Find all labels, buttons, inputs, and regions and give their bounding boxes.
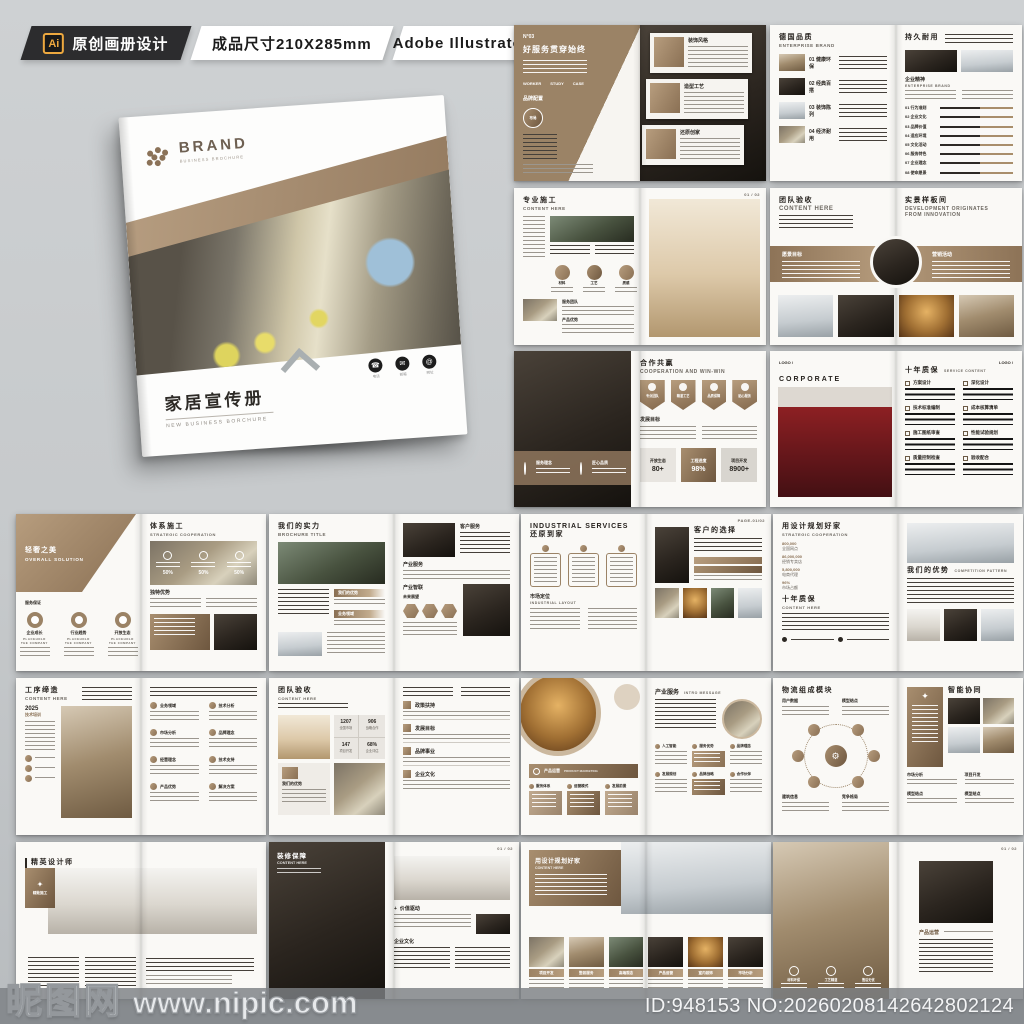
progress-bar — [940, 153, 1013, 155]
body-text-lines — [562, 324, 634, 333]
body-text-lines — [278, 703, 348, 711]
spread-title: 轻奢之美 — [25, 545, 132, 555]
section-label: 发展目标 — [640, 416, 757, 423]
body-text-lines — [278, 589, 329, 615]
bullet-dot — [782, 637, 787, 642]
photo-banner — [278, 542, 385, 584]
process-item: 品牌理念 — [209, 729, 258, 750]
item-icon — [209, 756, 216, 763]
page-right: 01 / 02 产品运营 — [889, 842, 1023, 999]
full-page-photo — [649, 199, 760, 337]
process-item: 技术分析 — [209, 702, 258, 723]
bullet-line — [791, 639, 834, 641]
metric-lines — [965, 779, 1015, 787]
flow-lines — [694, 753, 719, 763]
section-subtitle: INDUSTRIAL LAYOUT — [530, 601, 637, 605]
icon-label: 售后无忧 — [855, 977, 881, 982]
photo-thumbnail — [334, 763, 386, 815]
kitchen-photo — [778, 387, 892, 497]
page-right: 持久耐用 企业精神 ENTERPRISE BRAND 01 行为准则 02 企业… — [896, 25, 1022, 181]
service-lines — [963, 463, 1013, 475]
body-text-lines — [839, 56, 887, 70]
contact-phone-label: 电话 — [373, 375, 380, 380]
bar-label: 05 文化活动 — [905, 142, 937, 148]
sidebar-lines — [25, 721, 55, 751]
logo-placeholder: LOGO / — [779, 360, 887, 365]
section-label: 企业精神 — [905, 76, 1013, 83]
bar-label: 06 服务特色 — [905, 151, 937, 157]
cover-contacts: ☎ 电话 ✉ 邮箱 @ 网址 — [368, 355, 437, 381]
body-text-lines — [655, 699, 716, 729]
card-title: 还原创家 — [680, 129, 740, 136]
orbit-diagram: ⚙ — [786, 722, 886, 790]
eco-icon — [789, 966, 799, 976]
section-icon — [403, 724, 411, 732]
spread-process-creation: 工序缔造 CONTENT HERE 2025 技术培训 业务领域 技术分析 市场… — [16, 678, 266, 835]
bullet-circle — [25, 755, 32, 762]
photo-overlay-band: 服务理念 匠心品质 — [514, 451, 631, 485]
stat-label: 工程进度 — [691, 458, 707, 464]
progress-bar — [940, 116, 1013, 118]
spread-team-acceptance: 团队验收 CONTENT HERE 实景样板间 DEVELOPMENT ORIG… — [770, 188, 1022, 345]
item-lines — [150, 738, 199, 750]
item-label: 产品优势 — [160, 784, 176, 790]
photo-thumbnail — [463, 584, 510, 636]
donut-label: 企业成长 — [20, 630, 50, 636]
stat-icon — [235, 551, 244, 560]
spread-title: 精英设计师 — [31, 859, 74, 866]
metric-label: 项目开发 — [965, 772, 1015, 778]
flow-dot — [730, 744, 735, 749]
photo-thumbnail — [214, 614, 257, 650]
item-icon — [209, 702, 216, 709]
room-photo — [919, 861, 993, 923]
metric-label: 模型结点 — [965, 791, 1015, 797]
stat-value: 8900+ — [729, 466, 749, 473]
flow-dot — [730, 772, 735, 777]
page-right: 合作共赢 COOPERATION AND WIN-WIN 专业团队 精湛工艺 品… — [631, 351, 766, 507]
overlay-lines — [592, 468, 626, 476]
bubble-lines — [610, 557, 633, 583]
item-label: 解决方案 — [219, 784, 235, 790]
photo-thumbnail — [779, 126, 805, 143]
overlay-lines — [536, 468, 570, 476]
spread-design-planning: 用设计规划好家 STRATEGIC COOPERATION 800,000全国网… — [773, 514, 1023, 671]
section-label: 产品优势 — [562, 317, 634, 323]
badge-label: 专业团队 — [646, 393, 659, 398]
orbit-node — [852, 776, 864, 788]
service-lines — [905, 438, 955, 450]
spread-title-en: INDUSTRIAL SERVICES — [530, 523, 637, 531]
spread-title: 团队验收 — [278, 687, 385, 695]
handshake-icon — [580, 462, 582, 475]
photo-thumbnail — [983, 727, 1015, 753]
service-icon — [963, 456, 968, 461]
body-text-lines — [907, 578, 1014, 604]
bullet-circle — [25, 765, 32, 772]
stat-value: 80+ — [652, 466, 664, 473]
contact-web: @ 网址 — [422, 355, 437, 377]
spread-title: 我们的实力 — [278, 523, 385, 531]
spread-subtitle: STRATEGIC COOPERATION — [150, 532, 257, 537]
body-text-lines — [403, 622, 457, 636]
metric-lines — [965, 798, 1015, 806]
body-text-lines — [839, 104, 887, 118]
brown-card — [150, 614, 210, 650]
page-number: 01 / 02 — [1001, 846, 1017, 851]
corner-lines — [782, 706, 829, 718]
item-label: 经营理念 — [160, 757, 176, 763]
spread-title: 装修保障 — [277, 850, 321, 860]
spread-title: 德国品质 — [779, 34, 887, 42]
item-lines — [150, 765, 199, 777]
title-tick — [25, 858, 27, 868]
stat-label: 电商代理 — [782, 572, 889, 578]
spread-subtitle: CONTENT HERE — [779, 206, 887, 212]
spread-title: 产业服务 — [655, 687, 679, 696]
item-icon — [150, 756, 157, 763]
flow-dot — [605, 784, 610, 789]
feature-card: 还原创家 — [642, 125, 744, 165]
body-text-lines — [146, 958, 254, 971]
body-text-lines — [839, 80, 887, 94]
bar-sublabel: PRODUCT MARKETING — [564, 769, 598, 773]
card-label: 产品运营 — [659, 971, 673, 976]
badge-circle: 布局 — [523, 108, 543, 128]
item-icon — [150, 729, 157, 736]
photo-thumbnail — [278, 632, 322, 656]
progress-bar — [940, 172, 1013, 174]
heading-line — [944, 931, 993, 935]
spread-industry-service-flow: 产品运营 PRODUCT MARKETING 服务体系 运营模式 发展前景 产业… — [521, 678, 771, 835]
band-text-lines — [932, 261, 1010, 279]
body-text-lines — [595, 245, 635, 257]
body-text-lines — [523, 60, 587, 74]
process-item: 经营理念 — [150, 756, 199, 777]
item-icon — [209, 729, 216, 736]
body-text-lines — [334, 620, 385, 628]
bubble-dot — [618, 545, 625, 552]
page-number-label: N°03 — [523, 34, 631, 40]
donut-sub: PLACEHOLD THE COMPANY — [20, 637, 50, 645]
box-thumb — [282, 767, 298, 779]
bubble-lines — [572, 557, 595, 583]
metric-item: 模型结点 — [907, 791, 957, 806]
bubble-card — [568, 545, 599, 587]
body-text-lines — [334, 599, 385, 607]
page-right: 产业服务 INTRO MESSAGE 人工智能 服务优势 品牌理念 发展规划 品… — [646, 678, 771, 835]
card-label: 项目开发 — [539, 971, 553, 976]
badge-shield: 品质保障 — [702, 380, 727, 410]
item-icon — [150, 783, 157, 790]
service-lines — [963, 388, 1013, 400]
spread-subtitle: BROCHURE TITLE — [278, 532, 385, 537]
hexagon-icon — [441, 604, 457, 618]
page-left: 专业施工 CONTENT HERE 材料 工艺 质感 服务团队 产品优势 — [514, 188, 643, 345]
body-text-lines — [945, 34, 1013, 46]
contact-phone: ☎ 电话 — [368, 358, 383, 380]
bubble-dot — [542, 545, 549, 552]
trophy-icon: ✦ — [921, 691, 929, 702]
service-label: 成本核算清单 — [971, 405, 998, 411]
band-circle-photo — [870, 236, 922, 288]
badge-shield: 贴心服务 — [732, 380, 757, 410]
page-right: 01 / 02 +价值驱动 企业文化 — [385, 842, 519, 999]
corner-label: 模型结点 — [842, 698, 889, 704]
page-left: 轻奢之美 OVERALL SOLUTION 服务保证 企业成长PLACEHOLD… — [16, 514, 141, 671]
hexagon-icon — [403, 604, 419, 618]
feature-card: 整装服务 — [569, 937, 604, 991]
flow-lines — [608, 794, 632, 810]
bar-label: 07 企业理念 — [905, 160, 937, 166]
flow-label: 服务优势 — [699, 744, 713, 749]
feature-card: 市场分析 — [728, 937, 763, 991]
spread-corporate-culture: LOGO / CORPORATE CULTURE 大宅设计 LOGO / 十年质… — [770, 351, 1022, 507]
metric-label: 市场分析 — [907, 772, 957, 778]
item-lines — [209, 738, 258, 750]
body-text-lines — [839, 128, 887, 142]
orbit-node — [868, 750, 880, 762]
photo-banner: 50% 50% 50% — [150, 541, 257, 585]
staircase-photo — [621, 842, 771, 914]
item-lines — [150, 711, 199, 723]
list-text-lines — [523, 134, 557, 160]
corner-lines — [782, 802, 829, 814]
badge-icon — [741, 383, 749, 391]
feature-card: 室内装饰 — [688, 937, 723, 991]
photo-thumbnail — [959, 295, 1014, 337]
item-icon — [150, 702, 157, 709]
dining-room-photo — [61, 706, 132, 818]
photo-overlay-icons: 材料环保 工艺精湛 售后无忧 — [779, 966, 883, 989]
stat-percent: 50% — [227, 570, 251, 576]
spread-logistics-module: 物流组成模块 用户数据 模型结点 ⚙ 建筑信息 竞争格局 ✦ 智能协 — [773, 678, 1023, 835]
spread-subtitle: CONTENT HERE — [535, 866, 615, 870]
contact-web-label: 网址 — [426, 371, 433, 376]
page-right: 装饰风格 造型工艺 还原创家 — [640, 25, 766, 181]
metric-item: 市场分析 — [907, 772, 957, 787]
page-left: 团队验收 CONTENT HERE 1207全国市场 906战略合作 147项目… — [269, 678, 394, 835]
section-icon — [403, 747, 411, 755]
spread-title: 持久耐用 — [905, 34, 939, 42]
spread-subtitle: CONTENT HERE — [25, 696, 68, 701]
flow-box: 运营模式 — [567, 784, 600, 815]
progress-bars: 01 行为准则 02 企业文化 03 品牌价值 04 适应环境 05 文化活动 … — [905, 105, 1013, 175]
photo-thumbnail — [983, 698, 1015, 724]
flow-card: 人工智能 — [655, 744, 687, 767]
tag-label: 我们的优势 — [338, 590, 358, 596]
cover-title: 家居宣传册 — [164, 383, 273, 415]
spread-title: 专业施工 — [523, 197, 634, 205]
service-item: 质量控制检查 — [905, 455, 955, 475]
spread-industrial-services: INDUSTRIAL SERVICES 还原到家 市场定位 INDUSTRIAL… — [521, 514, 771, 671]
list-item-label: 01 健康环保 — [809, 56, 835, 70]
spread-subtitle: COMPETITION PATTERN — [955, 569, 1008, 573]
page-number: 01 / 02 — [744, 192, 760, 197]
item-label: 技术支持 — [219, 757, 235, 763]
section-label: 产品运营 — [919, 929, 939, 936]
spread-team-acceptance-2: 团队验收 CONTENT HERE 1207全国市场 906战略合作 147项目… — [269, 678, 519, 835]
spread-professional-construction: 专业施工 CONTENT HERE 材料 工艺 质感 服务团队 产品优势 — [514, 188, 766, 345]
process-item: 技术支持 — [209, 756, 258, 777]
body-text-lines — [640, 426, 696, 442]
spread-title: 团队验收 — [779, 197, 887, 205]
page-left: 物流组成模块 用户数据 模型结点 ⚙ 建筑信息 竞争格局 — [773, 678, 898, 835]
section-label: 十年质保 — [782, 596, 889, 604]
card-label: 室内装饰 — [699, 971, 713, 976]
flow-label: 发展规划 — [662, 772, 676, 777]
spread-title: 合作共赢 — [640, 360, 757, 368]
sidebar-text-lines — [523, 216, 545, 260]
page-left: 服务理念 匠心品质 — [514, 351, 631, 507]
photo-thumbnail — [944, 609, 977, 641]
photo-thumbnail — [961, 50, 1013, 72]
section-label: 服务团队 — [562, 299, 634, 305]
body-text-lines — [150, 598, 201, 610]
hexagon-icon — [422, 604, 438, 618]
item-lines — [209, 711, 258, 723]
body-text-lines — [82, 687, 132, 701]
phone-icon: ☎ — [368, 358, 383, 373]
spread-title: 体系施工 — [150, 523, 257, 531]
section-label: 市场定位 — [530, 593, 637, 600]
contact-mail: ✉ 邮箱 — [395, 357, 410, 379]
section-icon — [403, 701, 411, 709]
band-text-lines — [782, 261, 860, 279]
bathroom-photo — [907, 523, 1014, 563]
page-right: 政策扶持 发展目标 品牌事业 企业文化 — [394, 678, 519, 835]
photo-thumbnail — [778, 295, 833, 337]
item-label: 技术分析 — [219, 703, 235, 709]
photo-thumbnail — [981, 609, 1014, 641]
spread-german-quality: 德国品质 ENTERPRISE BRAND 01 健康环保 02 经典百搭 03… — [770, 25, 1022, 181]
photo-thumbnail — [948, 698, 980, 724]
item-lines — [209, 792, 258, 804]
mail-icon: ✉ — [395, 357, 410, 372]
service-item: 深化设计 — [963, 380, 1013, 400]
orbit-node — [792, 750, 804, 762]
table-row-bar — [694, 557, 762, 564]
network-icon — [524, 462, 526, 475]
panel-lines — [912, 705, 937, 745]
section-label: 独特优势 — [150, 589, 257, 596]
circle-caption: 工艺 — [583, 281, 605, 286]
item-icon — [209, 783, 216, 790]
item-lines — [150, 792, 199, 804]
section-lines — [403, 757, 510, 766]
spread-subtitle: OVERALL SOLUTION — [25, 557, 132, 562]
stat-label: 市场占额 — [782, 585, 889, 591]
craft-icon — [826, 966, 836, 976]
body-text-lines — [562, 306, 634, 315]
flow-box: 服务体系 — [529, 784, 562, 815]
photo-thumbnail — [683, 588, 707, 618]
size-label: 成品尺寸210X285mm — [212, 33, 372, 54]
adobe-ai-icon: Ai — [43, 33, 64, 54]
card-thumb — [646, 129, 676, 159]
service-label: 方案设计 — [913, 380, 931, 386]
stat-label: 全国市场 — [334, 725, 359, 730]
spread-title: 物流组成模块 — [782, 687, 889, 695]
bullet-dot — [838, 637, 843, 642]
orbit-node — [808, 776, 820, 788]
spread-title: 用设计规划好家 — [535, 856, 615, 865]
card-photo — [569, 937, 604, 967]
web-icon: @ — [422, 355, 437, 370]
wine-cellar-circle-photo — [521, 678, 601, 756]
flow-dot — [692, 772, 697, 777]
flow-card: 发展规划 — [655, 772, 687, 795]
stat-label: 经销专卖店 — [782, 559, 889, 565]
metric-item: 模型结点 — [965, 791, 1015, 806]
service-label: 深化设计 — [971, 380, 989, 386]
flow-card: 服务优势 — [692, 744, 724, 767]
card-text-lines — [684, 92, 744, 114]
badge-icon — [710, 383, 718, 391]
brand-logo-icon — [147, 150, 153, 156]
spread-subtitle: CONTENT HERE — [278, 696, 385, 701]
page-number: PAGE-01/02 — [738, 518, 765, 523]
stat-label: 战略合作 — [359, 725, 385, 730]
donut-label: 行业趋势 — [64, 630, 94, 636]
badge-icon — [679, 383, 687, 391]
badge-icon — [648, 383, 656, 391]
bar-label: 02 企业文化 — [905, 114, 937, 120]
section-label: 品牌配置 — [523, 95, 631, 102]
donut-sub: PLACEHOLD THE COMPANY — [64, 637, 94, 645]
flow-dot — [692, 744, 697, 749]
photo-thumbnail — [838, 295, 893, 337]
stat-lines — [227, 562, 251, 570]
feature-card: 装饰风格 — [650, 33, 752, 73]
spread-subtitle: INTRO MESSAGE — [684, 691, 721, 695]
page-left: 用设计规划好家 STRATEGIC COOPERATION 800,000全国网… — [773, 514, 898, 671]
page-number: 01 / 02 — [497, 846, 513, 851]
card-photo — [688, 937, 723, 967]
feature-card: 造型工艺 — [646, 79, 748, 119]
flow-label: 发展前景 — [612, 784, 626, 789]
flow-label: 品牌理念 — [737, 744, 751, 749]
corner-lines — [842, 706, 889, 718]
ribbon-original-design: Ai 原创画册设计 — [20, 26, 191, 60]
page-right: 我们的优势 COMPETITION PATTERN — [898, 514, 1023, 671]
flow-lines — [655, 779, 687, 795]
corner-lines — [842, 802, 889, 814]
stat-box: 开放生态80+ — [640, 448, 676, 482]
brand-logo: BRAND BUSINESS BROCHURE — [146, 135, 249, 166]
section-label: 产业智联 — [403, 584, 457, 591]
spread-title: 工序缔造 — [25, 687, 68, 695]
photo-thumbnail — [907, 609, 940, 641]
photo-thumbnail — [711, 588, 735, 618]
metric-label: 模型结点 — [907, 791, 957, 797]
icon-label: 工艺精湛 — [818, 977, 844, 982]
flow-card: 品牌理念 — [730, 744, 762, 767]
body-text-lines — [694, 538, 762, 554]
photo-thumbnail — [779, 78, 805, 95]
spread-title: 我们的优势 — [907, 567, 950, 575]
section-label: 发展目标 — [415, 725, 435, 732]
logo-placeholder: LOGO / — [905, 360, 1013, 365]
gear-icon: ⚙ — [825, 745, 847, 767]
stat-icon — [163, 551, 172, 560]
service-item: 方案设计 — [905, 380, 955, 400]
page-right: 体系施工 STRATEGIC COOPERATION 50% 50% 50% 独… — [141, 514, 266, 671]
caption-lines — [20, 647, 50, 657]
photo-thumbnail — [403, 523, 455, 557]
body-text-lines — [523, 164, 593, 176]
process-item: 产品优势 — [150, 783, 199, 804]
